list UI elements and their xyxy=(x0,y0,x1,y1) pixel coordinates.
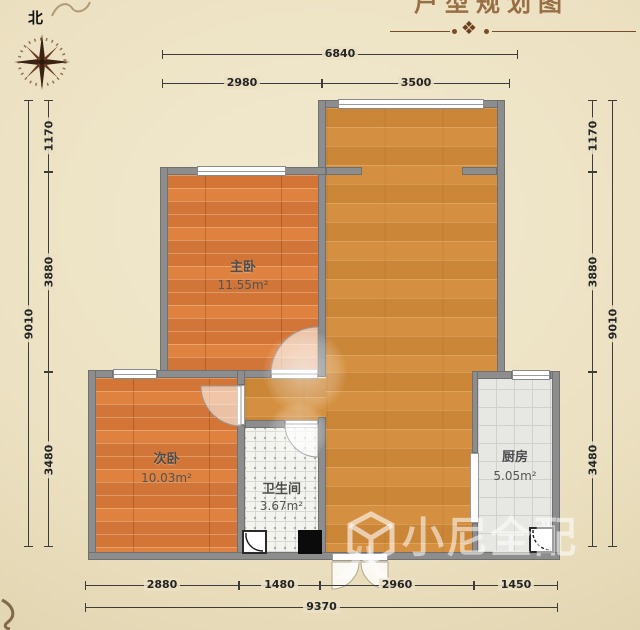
bathroom-label: 卫生间 xyxy=(245,478,318,497)
living-room-floor-lower xyxy=(326,372,472,552)
dim-top-overall: 6840 xyxy=(162,50,518,59)
wall-segment xyxy=(245,420,285,428)
north-label: 北 xyxy=(28,7,43,28)
dim-left-seg2: 3880 xyxy=(44,172,53,372)
wall-segment xyxy=(88,370,96,560)
window xyxy=(338,99,484,109)
ornament-line-left xyxy=(390,31,450,32)
wall-segment xyxy=(160,167,168,378)
bathroom-door-opening xyxy=(285,420,318,428)
dim-left-seg1: 1170 xyxy=(44,100,53,172)
compass-rose-icon xyxy=(12,32,72,92)
dim-bottom-seg4: 1450 xyxy=(474,581,558,590)
dim-left-seg3: 3480 xyxy=(44,372,53,547)
hallway-floor xyxy=(245,378,326,420)
dim-bottom-seg2: 1480 xyxy=(239,581,320,590)
window xyxy=(197,166,286,176)
kitchen-area: 5.05m² xyxy=(478,469,552,483)
dim-right-seg1: 1170 xyxy=(588,100,597,172)
dim-bottom-seg3: 2960 xyxy=(320,581,474,590)
living-room-floor-upper xyxy=(326,108,497,372)
bathroom-black-fixture xyxy=(298,530,322,554)
dim-right-seg3: 3480 xyxy=(588,372,597,547)
dim-right-overall: 9010 xyxy=(608,100,617,547)
dim-bottom-overall: 9370 xyxy=(85,603,558,612)
wall-segment xyxy=(472,371,478,453)
wall-stub xyxy=(326,167,362,175)
kitchen-label: 厨房 xyxy=(478,446,552,465)
page-title-fragment: 户型规划图 xyxy=(414,0,569,18)
bathroom-area: 3.67m² xyxy=(245,499,318,513)
master-bedroom-label: 主卧 xyxy=(168,256,318,275)
dim-bottom-seg1: 2880 xyxy=(85,581,239,590)
wall-segment xyxy=(157,370,271,378)
window xyxy=(512,370,550,380)
dim-right-seg2: 3880 xyxy=(588,172,597,372)
second-door-opening xyxy=(237,385,245,425)
corner-flourish-icon xyxy=(50,0,92,18)
wall-stub xyxy=(462,167,497,175)
master-bedroom-area: 11.55m² xyxy=(168,278,318,292)
dim-top-seg1: 2980 xyxy=(162,79,322,88)
wall-segment xyxy=(237,370,245,385)
dim-left-overall: 9010 xyxy=(24,100,33,547)
master-door-leaf xyxy=(271,369,318,379)
bathroom-shower-fixture xyxy=(242,530,267,554)
corner-flourish-icon xyxy=(0,598,22,630)
wall-segment xyxy=(318,100,326,377)
floorplan-page: 户型规划图 ❖ 北 xyxy=(0,0,640,630)
second-bedroom-area: 10.03m² xyxy=(96,471,237,485)
kitchen-floor xyxy=(478,378,552,552)
second-bedroom-label: 次卧 xyxy=(96,448,237,467)
wall-segment xyxy=(497,100,505,372)
fleur-ornament-icon: ❖ xyxy=(456,18,482,39)
dim-top-seg2: 3500 xyxy=(322,79,510,88)
kitchen-stove-fixture xyxy=(529,527,554,553)
ornament-line-right xyxy=(492,31,636,32)
wall-segment xyxy=(472,371,512,379)
wall-segment xyxy=(88,552,560,560)
entry-door-threshold xyxy=(332,553,388,561)
ornament-dot xyxy=(484,29,489,34)
window xyxy=(113,369,157,379)
